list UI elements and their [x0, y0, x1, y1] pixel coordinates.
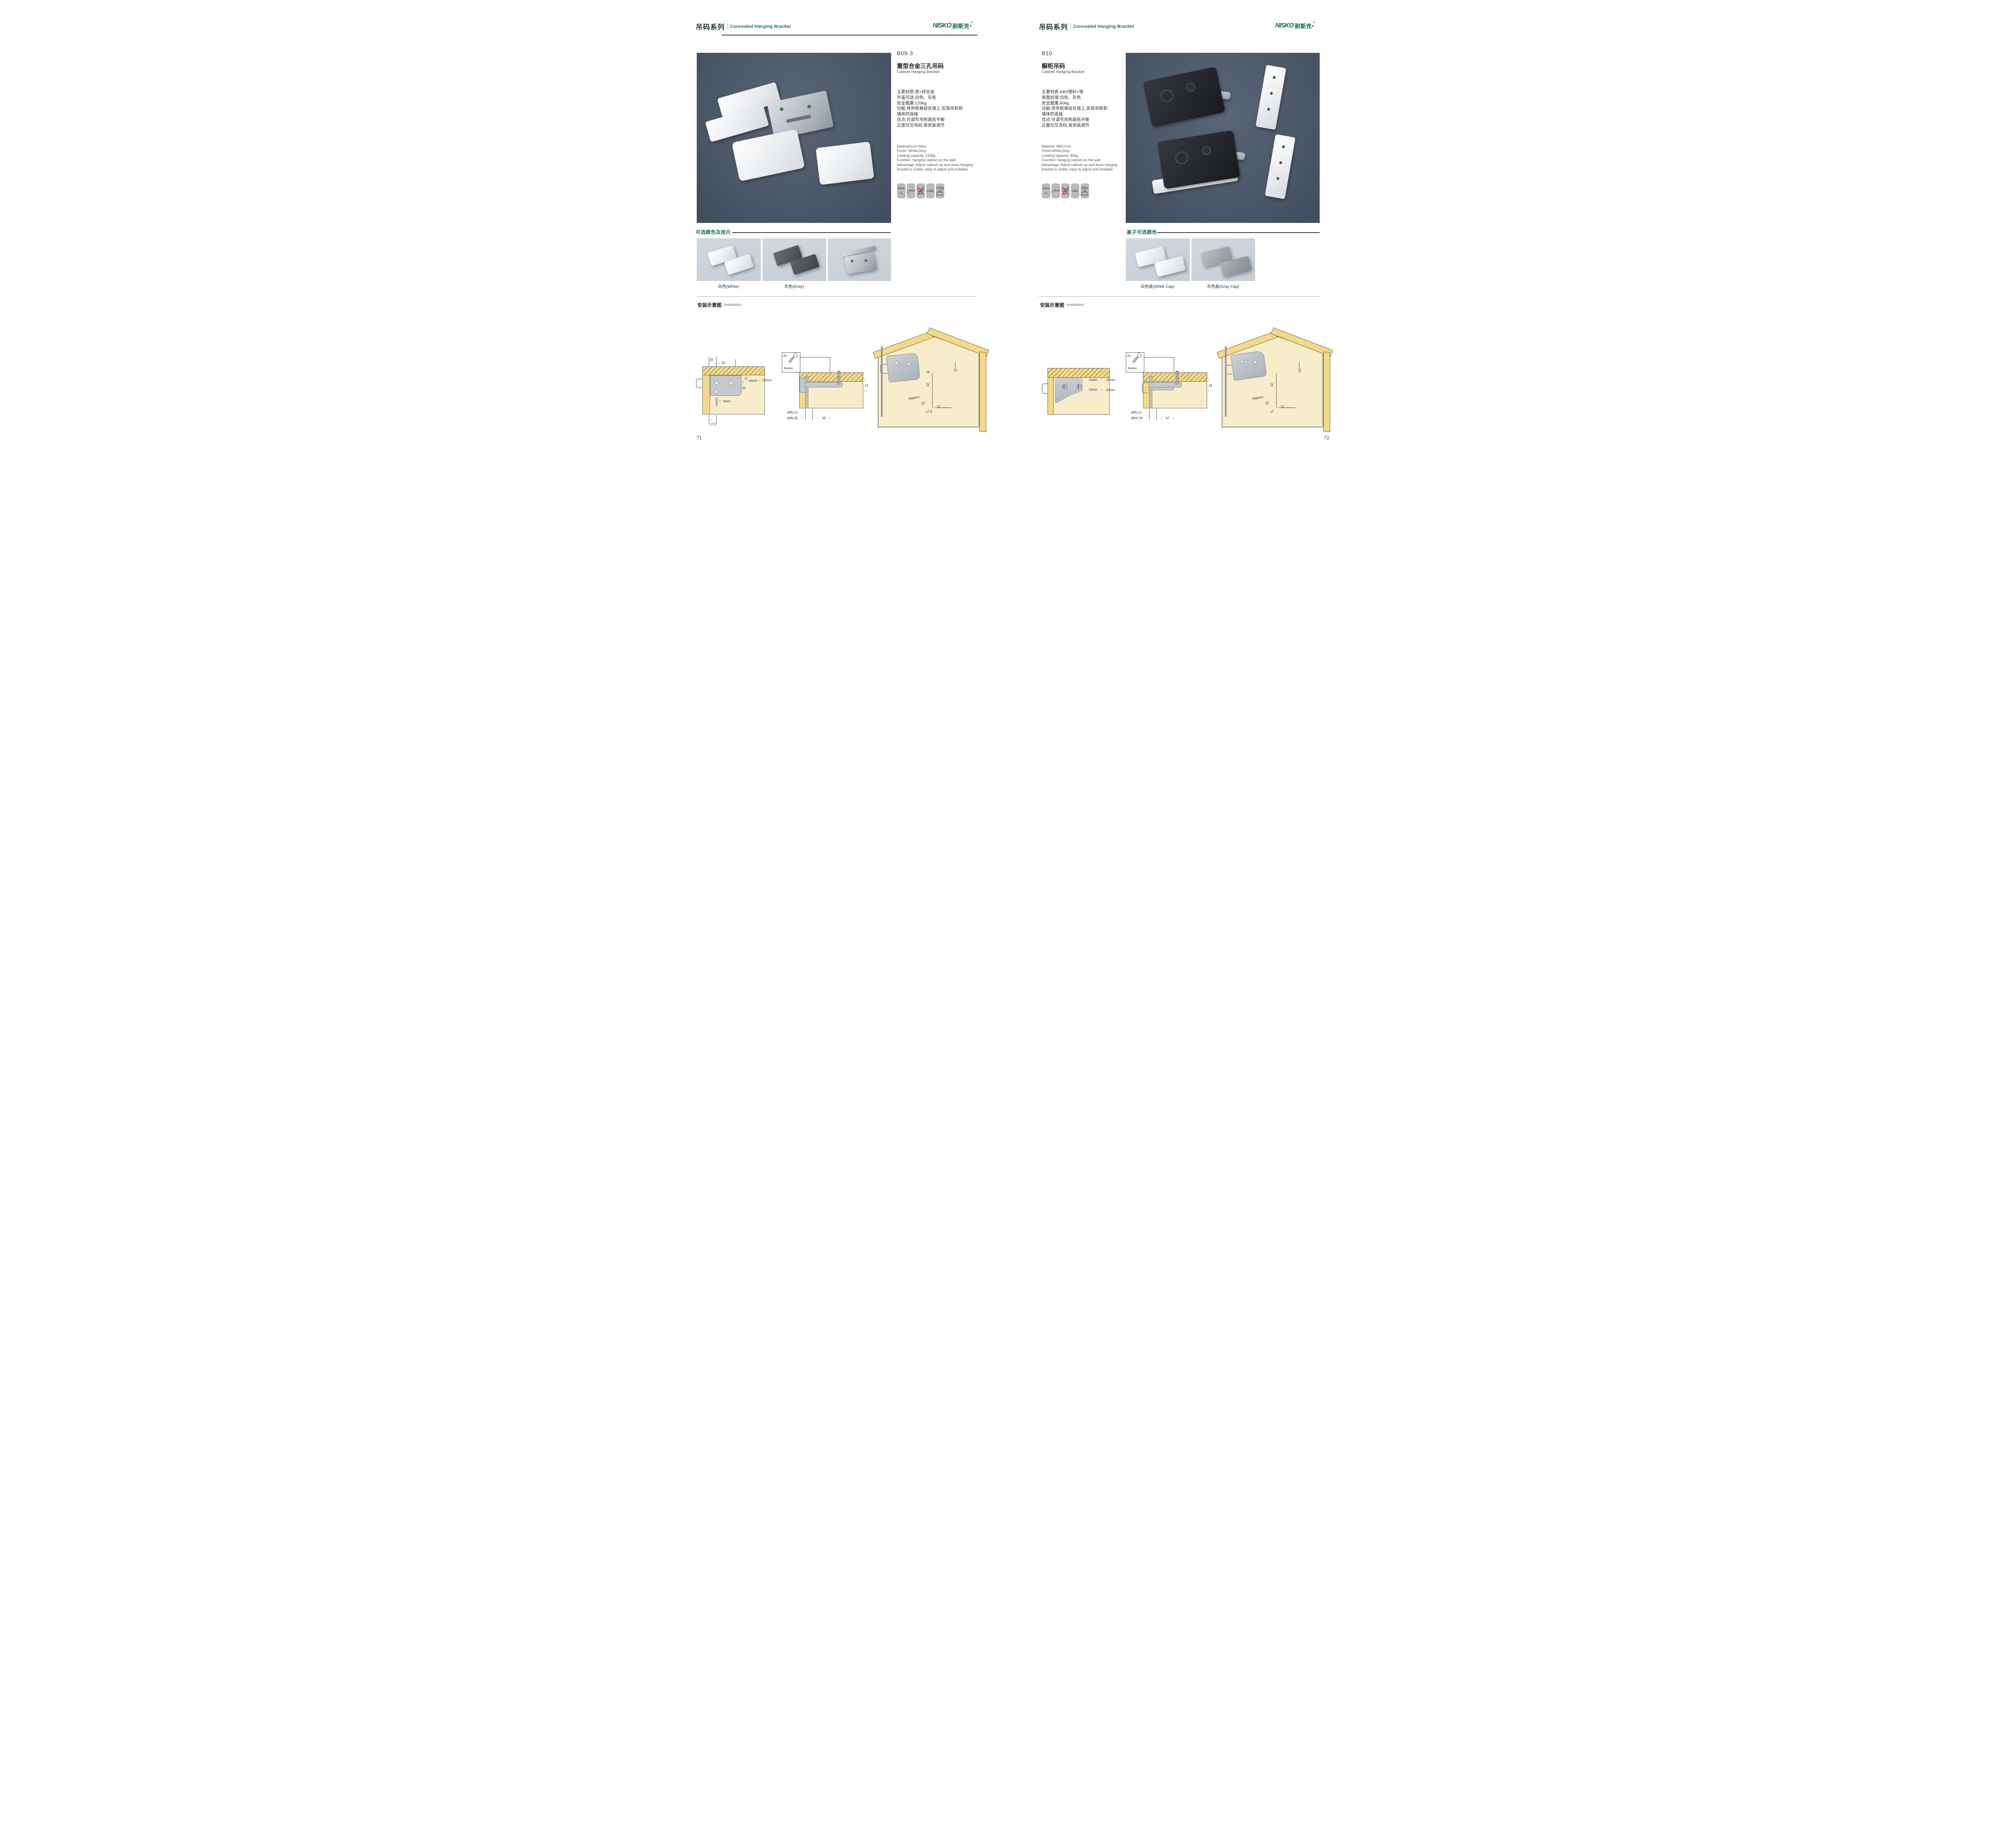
screw-icon — [1176, 371, 1179, 385]
specs-chinese: 主要材质:ABS塑料+铁 表面处理:白色、灰色 安全载重:80kg 功能:将吊柜… — [1042, 89, 1108, 129]
swatch-caption: 白色(White) — [697, 283, 761, 289]
arrow-icon — [816, 416, 820, 420]
install-diagram-section: 2x Φ4mm 18 MIN.12 MAX.30 67 — [1126, 352, 1220, 424]
swatch-caption: 灰色(Gray) — [762, 283, 826, 289]
dim-label: 67 — [1166, 416, 1170, 420]
page-header: 吊码系列 Concealed Hanging Bracket — [696, 21, 791, 31]
product-photo-b10 — [1126, 53, 1320, 223]
abs-bracket-image — [1143, 67, 1225, 127]
white-cover-image — [731, 129, 805, 181]
screw-spec-box: 2x Φ4mm — [782, 352, 800, 372]
specs-english: Material:Iron+Alloy Finish: White,Grey L… — [897, 144, 973, 172]
spec-line: 墙体的连接 — [1042, 112, 1108, 117]
screw-bit-icon — [748, 379, 757, 382]
spec-line: 优点:可调节吊柜高低平衡 — [1042, 117, 1108, 123]
registered-mark: ® — [971, 21, 973, 24]
vertical-arrow-icon — [907, 189, 909, 193]
swatch-gray-cap — [1191, 238, 1255, 281]
spec-line: Advantage: Adjust cabinet up and down ha… — [897, 163, 973, 167]
wall-rail — [881, 346, 883, 417]
hook-icon — [1042, 383, 1048, 394]
arrow-icon — [954, 363, 955, 367]
spec-line: 功能:将吊柜悬挂在墙上,实现吊柜和 — [1042, 106, 1108, 112]
arrow-icon — [1160, 416, 1164, 420]
spec-line: 安全载重:80kg — [1042, 101, 1108, 106]
color-section-title: 盖子可选颜色 — [1127, 229, 1157, 235]
product-name-cn: 橱柜吊码 — [1042, 62, 1065, 70]
dim-label: MAX.30 — [1131, 416, 1143, 420]
weight-icon — [936, 190, 943, 196]
spec-line: 优点:可调节吊柜高低平衡 — [897, 117, 963, 123]
horizontal-arrow-icon — [899, 190, 904, 195]
logo-latin: NISKO — [1275, 22, 1294, 29]
spec-line: Function: hanging cabinet on the wall — [1042, 158, 1118, 162]
back-panel — [1149, 376, 1152, 408]
dim-label: 17 — [954, 369, 958, 372]
screw-bit-icon — [715, 397, 718, 406]
wood-panel — [702, 366, 765, 376]
dim-label: 18 — [1209, 384, 1212, 387]
dim-label: 58 — [822, 416, 826, 420]
badge-panel-height: 15mm — [1052, 183, 1060, 198]
install-title-en: Installation — [724, 303, 741, 307]
logo-cn: 耐斯克 — [1295, 22, 1312, 30]
screw-count: 2x — [1127, 354, 1131, 358]
dim-label: MIN.12 — [1131, 411, 1142, 414]
logo-cn: 耐斯克 — [952, 22, 969, 30]
spec-line: bracket is visible, easy to adjust and i… — [897, 167, 973, 172]
section-divider — [697, 296, 977, 297]
badge-no-drill — [1061, 183, 1070, 198]
install-diagram-section: 2x Φ4mm 12 MIN.12 MIN.35 58 — [782, 352, 876, 424]
spec-line: Material: ABS+iron — [1042, 144, 1118, 149]
arrow-icon — [718, 361, 721, 365]
wood-panel — [799, 372, 863, 382]
arrow-icon — [742, 380, 744, 384]
arrow-icon — [864, 377, 866, 381]
dim-label: MIN.35 — [787, 416, 798, 420]
spec-line: Loading capacity: 80kg — [1042, 154, 1118, 158]
screw-icon — [1132, 356, 1139, 363]
swatch-caption: 灰色盖(Gray Cap) — [1191, 283, 1255, 289]
product-photo-b09-3 — [697, 53, 891, 223]
registered-mark: ® — [1313, 21, 1315, 24]
arrow-icon — [932, 405, 935, 409]
badge-panel-height: 6mm — [907, 183, 915, 198]
swatch-gray — [762, 238, 826, 281]
arrow-icon — [1208, 389, 1210, 393]
dim-label: 32 — [1281, 405, 1285, 409]
dim-label: MIN.12 — [787, 411, 798, 414]
bracket-3d — [886, 353, 920, 383]
page-right: 吊码系列 Concealed Hanging Bracket NISKO 耐斯克… — [1008, 0, 1346, 462]
dim-label: 17.5 — [710, 422, 716, 426]
product-name-en: Cabinet Hanging Bracket — [897, 70, 940, 74]
dim-label: 32 — [722, 361, 725, 365]
dim-label: 16 — [710, 358, 713, 362]
install-diagram-section: 16 32 17 25 20mm 6mm 17.5 — [697, 354, 779, 431]
arrow-icon — [710, 417, 713, 421]
dim-label: 10mm — [1106, 388, 1115, 392]
screw-spec-box: 2x Φ4mm — [1126, 352, 1144, 372]
swatch-white — [697, 238, 761, 281]
wall-rail — [1225, 346, 1227, 417]
arrow-icon — [1100, 388, 1103, 391]
arrow-icon — [719, 399, 721, 403]
screw-diameter: Φ4mm — [1128, 366, 1137, 370]
wood-panel — [1048, 368, 1110, 378]
hook-icon — [1225, 365, 1232, 374]
section-rule — [1157, 232, 1320, 233]
install-title-cn: 安装示意图 — [698, 302, 722, 308]
swatch-bracket — [828, 238, 891, 281]
hook-icon — [1142, 382, 1148, 393]
swatch-white-cap — [1126, 238, 1190, 281]
page-number: 71 — [697, 435, 702, 441]
dim-label: 32 — [937, 405, 941, 409]
spec-line: 表面处理:白色、灰色 — [1042, 95, 1108, 101]
arrow-icon — [1172, 416, 1175, 420]
hook-icon — [696, 379, 702, 388]
vertical-arrow-icon — [1052, 189, 1053, 193]
specs-english: Material: ABS+iron Finish:White,Grey Loa… — [1042, 144, 1118, 172]
feature-badges: 20mm 6mm LGA 120Kg — [897, 183, 944, 198]
series-title-cn: 吊码系列 — [1039, 21, 1068, 31]
dim-label: 16 — [926, 370, 930, 374]
badge-lga-cert: LGA — [1071, 183, 1079, 198]
screw-count: 2x — [783, 354, 787, 358]
spec-line: 正面可见吊码,易安装调节 — [1042, 123, 1108, 129]
dim-label: 6mm — [723, 399, 731, 403]
dim-label: 17 — [745, 376, 748, 380]
phillips-screw-icon — [1077, 384, 1082, 389]
arrow-icon — [1276, 405, 1279, 409]
header-separator — [1070, 23, 1071, 29]
spec-line: 安全载重:120kg — [897, 101, 963, 106]
white-cover-image — [815, 141, 874, 185]
hook-icon — [880, 364, 887, 374]
spec-line: Material:Iron+Alloy — [897, 144, 973, 149]
side-panel — [702, 375, 710, 414]
spec-line: Advantage: Adjust cabinet up and down ha… — [1042, 163, 1118, 167]
badge-load-capacity: 120Kg — [936, 183, 944, 198]
header-separator — [727, 23, 728, 29]
series-title-cn: 吊码系列 — [696, 21, 725, 31]
feature-badges: 10mm 15mm LGA 80Kg — [1042, 183, 1089, 198]
spec-line: Loading capacity: 120kg — [897, 154, 973, 158]
badge-load-capacity: 80Kg — [1081, 183, 1089, 198]
page-header: 吊码系列 Concealed Hanging Bracket — [1039, 21, 1134, 31]
section-rule — [732, 232, 891, 233]
horizontal-arrow-icon — [1043, 190, 1048, 195]
install-title-cn: 安装示意图 — [1040, 302, 1064, 308]
product-code: B09-3 — [897, 50, 913, 56]
spec-line: 外盖可选:白色、灰色 — [897, 95, 963, 101]
dim-label: 15mm — [1106, 378, 1115, 382]
bracket-arm — [805, 382, 843, 387]
product-name-cn: 重型合金三孔吊码 — [897, 62, 944, 70]
arrow-icon — [1287, 405, 1290, 409]
arrow-icon — [1101, 377, 1102, 381]
hanging-rail-image — [1264, 134, 1295, 199]
bracket-3d — [1230, 351, 1266, 381]
wood-panel — [1143, 372, 1207, 382]
swatch-caption: 白色盖(White Cap) — [1126, 283, 1190, 289]
section-divider — [1039, 296, 1319, 297]
screw-bit-icon — [1089, 379, 1098, 381]
bracket-rail — [1149, 387, 1174, 390]
screw-diameter: Φ4mm — [784, 366, 793, 370]
install-title-en: Installation — [1067, 303, 1084, 307]
series-title-en: Concealed Hanging Bracket — [1073, 24, 1134, 29]
dim-label: 20mm — [763, 379, 772, 382]
side-panel — [979, 352, 986, 432]
page-left: 吊码系列 Concealed Hanging Bracket NISKO 耐斯克… — [670, 0, 1008, 462]
specs-chinese: 主要材质:铁+锌合金 外盖可选:白色、灰色 安全载重:120kg 功能:将吊柜悬… — [897, 89, 963, 129]
color-section-title: 可选颜色及挂片 — [696, 229, 731, 235]
spec-line: Finish:White,Grey — [1042, 149, 1118, 153]
arrow-icon — [758, 379, 761, 382]
spec-line: 主要材质:铁+锌合金 — [897, 89, 963, 95]
brand-logo: NISKO 耐斯克 ® — [933, 22, 973, 30]
arrow-icon — [1208, 377, 1210, 381]
dim-label: 42 — [926, 383, 929, 387]
badge-panel-width: 10mm — [1042, 183, 1050, 198]
product-name-en: Cabinet Hanging Bracket — [1042, 70, 1085, 74]
install-diagram-section: 13 42 RMAX4 19 17 32 — [1218, 325, 1331, 435]
dim-label: 25 — [742, 386, 746, 390]
spec-line: Function: hanging cabinet on the wall — [897, 158, 973, 162]
weight-icon — [1081, 190, 1088, 196]
badge-panel-width: 20mm — [897, 183, 906, 198]
install-diagram-section: 17 16 42 RMAX4 16 32 17.5 — [875, 325, 987, 435]
logo-latin: NISKO — [933, 22, 952, 29]
arrow-icon — [943, 405, 946, 409]
dim-label: 12 — [865, 384, 868, 387]
arrow-icon — [864, 389, 866, 393]
screw-icon — [837, 371, 840, 385]
side-panel — [1323, 352, 1330, 432]
spec-line: 正面可见吊码,易安装调节 — [897, 123, 963, 129]
spec-line: bracket is visible, easy to adjust and i… — [1042, 167, 1118, 172]
phillips-screw-icon — [1062, 384, 1067, 389]
arrow-icon — [1297, 363, 1299, 367]
spec-line: 功能:将吊柜悬挂在墙上,实现吊柜和 — [897, 106, 963, 112]
page-number: 72 — [1324, 435, 1329, 441]
dim-label: 42 — [1270, 383, 1273, 387]
dim-label: 13 — [1297, 369, 1301, 372]
logo-red-dot-icon — [1312, 25, 1314, 27]
catalog-spread: 吊码系列 Concealed Hanging Bracket NISKO 耐斯克… — [670, 0, 1346, 462]
screw-icon — [788, 356, 795, 363]
brand-logo: NISKO 耐斯克 ® — [1275, 22, 1315, 30]
hanging-rail-image — [1255, 65, 1286, 130]
series-title-en: Concealed Hanging Bracket — [730, 24, 791, 29]
product-code: B10 — [1042, 50, 1052, 56]
dim-label: 17.5 — [926, 410, 933, 414]
spec-line: 主要材质:ABS塑料+铁 — [1042, 89, 1108, 95]
spec-line: Finish: White,Grey — [897, 149, 973, 153]
install-diagram-section: 15mm 10mm — [1041, 354, 1126, 431]
header-rule — [722, 35, 977, 35]
spec-line: 墙体的连接 — [897, 112, 963, 117]
badge-lga-cert: LGA — [926, 183, 935, 198]
badge-no-drill — [916, 183, 925, 198]
logo-red-dot-icon — [970, 25, 971, 27]
screw-bit-icon — [1089, 388, 1098, 391]
arrow-icon — [828, 416, 831, 420]
